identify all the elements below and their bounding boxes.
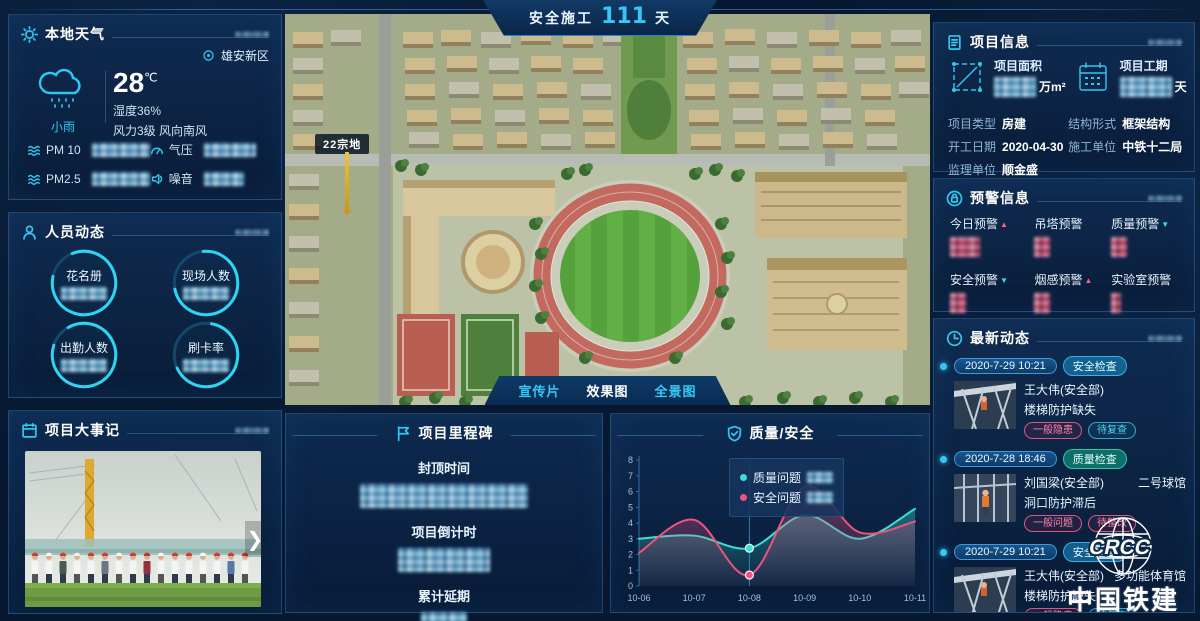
milestone-title: 项目里程碑 [419,423,494,443]
wind-text: 风力3级 风向南风 [113,122,207,139]
feed-title: 最新动态 [970,328,1030,348]
tab-rendering[interactable]: 效果图 [586,381,628,400]
field-start-date: 开工日期2020-04-30 [948,138,1068,155]
site-render-view: 22宗地 宣传片 效果图 全景图 [285,14,930,405]
carousel-next-button[interactable]: ❯ [245,521,265,557]
bullet-dot [940,549,947,556]
temperature-value: 28 [113,67,144,98]
temperature-unit: ℃ [144,71,157,85]
gauge-label: 出勤人数 [60,341,108,355]
gauge-onsite: 现场人数 [145,247,267,319]
alert-today: 今日预警▲ [950,215,1034,257]
humidity-text: 湿度36% [113,102,207,119]
person-icon [21,224,38,241]
legend-quality: 质量问题 [753,469,801,486]
event-photo [25,451,261,607]
crcc-logo: CRCC 中国铁建 [1048,512,1198,617]
milestone-row-label: 项目倒计时 [286,522,602,541]
svg-text:6: 6 [628,487,633,497]
calendar-icon [1074,58,1112,96]
pressure-icon [150,143,164,157]
project-info-title: 项目信息 [970,32,1030,52]
feed-place: 二号球馆 [1138,474,1186,491]
trend-down-icon: ▼ [1000,276,1008,285]
personnel-title: 人员动态 [45,222,105,242]
field-project-type: 项目类型房建 [948,115,1068,132]
crcc-name: 中国铁建 [1048,580,1198,617]
quality-safety-panel: 质量/安全 12345678010-0610-0710-0810-0910-10… [610,413,930,613]
flag-icon [395,425,412,442]
chart-tooltip: 质量问题 安全问题 [729,458,844,517]
feed-type-badge: 质量检查 [1063,449,1127,469]
svg-text:10-09: 10-09 [793,593,816,603]
weather-panel: 本地天气 雄安新区 小雨 28℃ 湿度36% 风力3级 风向南风 PM 10 [8,14,282,200]
feed-tag: 一般隐患 [1024,422,1082,439]
feed-date-pill: 2020-7-29 10:21 [954,358,1057,374]
chart-title: 质量/安全 [750,423,815,443]
parcel-label: 22宗地 [315,134,369,154]
field-builder: 施工单位中铁十二局 [1068,138,1186,155]
weather-title: 本地天气 [45,24,105,44]
gauge-label: 现场人数 [182,269,230,283]
svg-text:5: 5 [628,502,633,512]
gauge-roster: 花名册 [23,247,145,319]
svg-text:10-11: 10-11 [904,593,926,603]
feed-person: 王大伟(安全部) [1024,381,1104,398]
events-panel: 项目大事记 ❯ [8,410,282,614]
field-supervisor: 监理单位顺金盛 [948,161,1068,178]
noise-label: 噪音 [169,170,193,187]
feed-item[interactable]: 2020-7-29 10:21 安全检查 王大伟(安全部) 楼梯防护缺失 一般隐… [934,350,1194,443]
stat-unit: 万m² [1039,80,1066,94]
view-tab-bar: 宣传片 效果图 全景图 [484,376,730,405]
stat-label: 项目工期 [1120,57,1187,74]
safe-days-label: 安全施工 [529,8,593,28]
svg-text:10-08: 10-08 [738,593,761,603]
stat-area: 项目面积 万m² [948,57,1066,97]
document-icon [946,34,963,51]
pm25-label: PM2.5 [46,172,81,186]
site-render-image [285,14,930,405]
pressure-label: 气压 [169,141,193,158]
noise-icon [150,172,164,186]
location-label: 雄安新区 [221,47,269,64]
svg-text:4: 4 [628,518,633,528]
alerts-panel: 预警信息 今日预警▲ 吊塔预警 质量预警▼ 安全预警▼ 烟感预警▲ 实验室预警 [933,178,1195,312]
svg-text:3: 3 [628,534,633,544]
svg-text:8: 8 [628,455,633,465]
feed-desc: 楼梯防护缺失 [1024,401,1186,418]
feed-date-pill: 2020-7-28 18:46 [954,451,1057,467]
svg-text:10-10: 10-10 [848,593,871,603]
clock-icon [946,330,963,347]
alert-lab: 实验室预警 [1111,271,1188,313]
location-pin-icon [200,49,217,62]
bullet-dot [940,363,947,370]
feed-photo [954,567,1016,613]
stat-label: 项目面积 [994,57,1066,74]
gauge-swipe-rate: 刷卡率 [145,319,267,391]
feed-date-pill: 2020-7-29 10:21 [954,544,1057,560]
gauge-label: 花名册 [66,269,102,283]
safe-days-count: 111 [601,4,647,29]
rain-cloud-icon: 小雨 [31,67,95,139]
feed-tag: 待复查 [1088,422,1136,439]
svg-text:10-06: 10-06 [627,593,650,603]
legend-safety: 安全问题 [753,489,801,506]
svg-text:0: 0 [628,581,633,591]
svg-text:2: 2 [628,550,633,560]
area-icon [948,58,986,96]
tab-promo-video[interactable]: 宣传片 [518,381,560,400]
lock-shield-icon [946,190,963,207]
project-info-panel: 项目信息 项目面积 万m² 项目工期 天 项目类型房建 结构形式框架结构 开工日… [933,22,1195,172]
safe-days-unit: 天 [655,8,671,28]
location-badge: 雄安新区 [200,47,269,64]
shield-check-icon [726,425,743,442]
stat-unit: 天 [1175,80,1187,94]
personnel-panel: 人员动态 花名册 现场人数 出勤人数 刷卡率 [8,212,282,398]
alert-crane: 吊塔预警 [1034,215,1111,257]
gauge-attendance: 出勤人数 [23,319,145,391]
trend-down-icon: ▼ [1161,220,1169,229]
milestone-row-label: 封顶时间 [286,458,602,477]
milestone-panel: 项目里程碑 封顶时间 项目倒计时 累计延期 [285,413,603,613]
trend-up-icon: ▲ [1000,220,1008,229]
alerts-title: 预警信息 [970,188,1030,208]
gauge-label: 刷卡率 [188,341,224,355]
bullet-dot [940,456,947,463]
sun-icon [21,26,38,43]
safe-days-banner: 安全施工 111 天 [483,0,717,36]
milestone-row-label: 累计延期 [286,586,602,605]
calendar-icon [21,422,38,439]
alert-quality: 质量预警▼ [1111,215,1188,257]
events-title: 项目大事记 [45,420,120,440]
pm-icon [27,172,41,186]
feed-photo [954,381,1016,429]
alert-safety: 安全预警▼ [950,271,1034,313]
alert-smoke: 烟感预警▲ [1034,271,1111,313]
feed-photo [954,474,1016,522]
divider [105,71,106,123]
parcel-pin [345,152,349,210]
tab-panorama[interactable]: 全景图 [655,381,697,400]
trend-up-icon: ▲ [1084,276,1092,285]
feed-type-badge: 安全检查 [1063,356,1127,376]
feed-desc: 洞口防护滞后 [1024,494,1186,511]
weather-condition: 小雨 [31,118,95,135]
pm10-label: PM 10 [46,143,81,157]
crcc-acronym: CRCC [1087,536,1152,559]
feed-person: 刘国梁(安全部) [1024,474,1104,491]
svg-text:10-07: 10-07 [683,593,706,603]
field-structure: 结构形式框架结构 [1068,115,1186,132]
svg-text:7: 7 [628,471,633,481]
pm-icon [27,143,41,157]
stat-duration: 项目工期 天 [1074,57,1187,97]
svg-text:1: 1 [628,565,633,575]
